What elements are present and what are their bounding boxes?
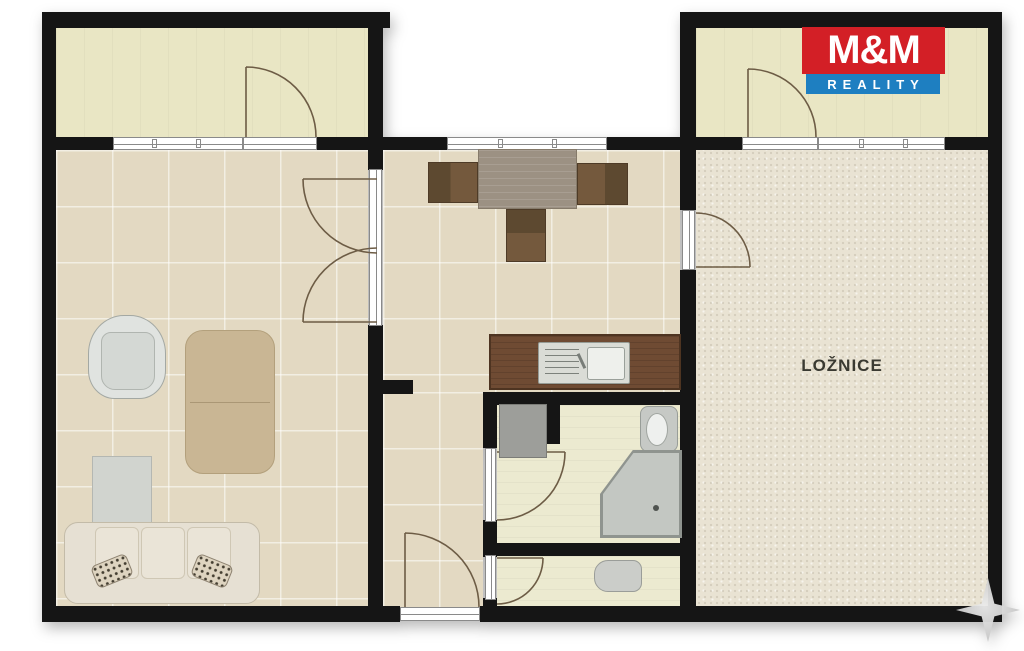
wall-stub [383,380,413,394]
bedroom-label: LOŽNICE [696,356,988,376]
kitchen-sink [538,342,630,384]
window-mullion [903,139,908,148]
sofa [64,522,260,604]
wall-segment [368,325,383,608]
coffee-table [185,330,275,474]
sink-basin [587,347,625,380]
wall-segment [483,598,497,622]
dining-chair-left [428,162,478,203]
living-double-door-frame [369,169,382,326]
wall-segment [680,270,696,608]
sink-drainboard [545,349,579,379]
bedroom-floor [696,150,988,607]
dining-table [478,149,577,209]
wall-segment [680,12,696,210]
entry-door-threshold [400,607,480,621]
toilet [594,560,642,592]
armchair-seat [101,332,155,390]
wall-segment [680,12,1002,28]
window-mullion [498,139,503,148]
bathtub-drain [653,505,659,511]
floorplan: LOŽNICE M&M REALITY [0,0,1024,651]
wash-basin [640,406,678,452]
wall-segment [607,137,680,150]
corridor-floor [383,392,483,607]
wall-segment [42,606,400,622]
dining-chair-bottom [506,209,546,262]
balcony-left-floor [56,28,368,137]
wall-segment [988,12,1002,622]
balcony-right-door-threshold [742,137,818,150]
floorplan-image: LOŽNICE M&M REALITY [0,0,1024,651]
wc-door-frame [485,555,496,600]
wall-stub [547,392,560,444]
armchair [88,315,166,399]
wall-segment [317,137,368,150]
dining-chair-right [577,163,628,205]
tv-board [92,456,152,528]
window-mullion [152,139,157,148]
wall-segment [42,12,390,28]
window-mullion [196,139,201,148]
balcony-left-door-threshold [243,137,317,150]
bathroom-door-frame [485,448,496,522]
mm-reality-logo-top: M&M [802,27,945,74]
bedroom-balcony-window [818,137,945,150]
wall-segment [696,137,742,150]
mm-reality-logo-bottom: REALITY [806,74,940,94]
wall-segment [383,137,447,150]
wall-segment [945,137,988,150]
wall-segment [480,606,1002,622]
sofa-cushion [141,527,185,579]
window-mullion [552,139,557,148]
window-mullion [859,139,864,148]
wall-segment [483,543,696,556]
wall-segment [56,137,113,150]
living-balcony-window [113,137,243,150]
wall-segment [42,12,56,622]
kitchen-counter [489,334,681,390]
wc-floor [497,556,680,607]
washing-machine [499,404,547,458]
wall-segment [483,392,497,448]
wall-segment [368,12,383,170]
bedroom-door-frame [682,210,695,270]
wash-basin-bowl [646,413,668,446]
